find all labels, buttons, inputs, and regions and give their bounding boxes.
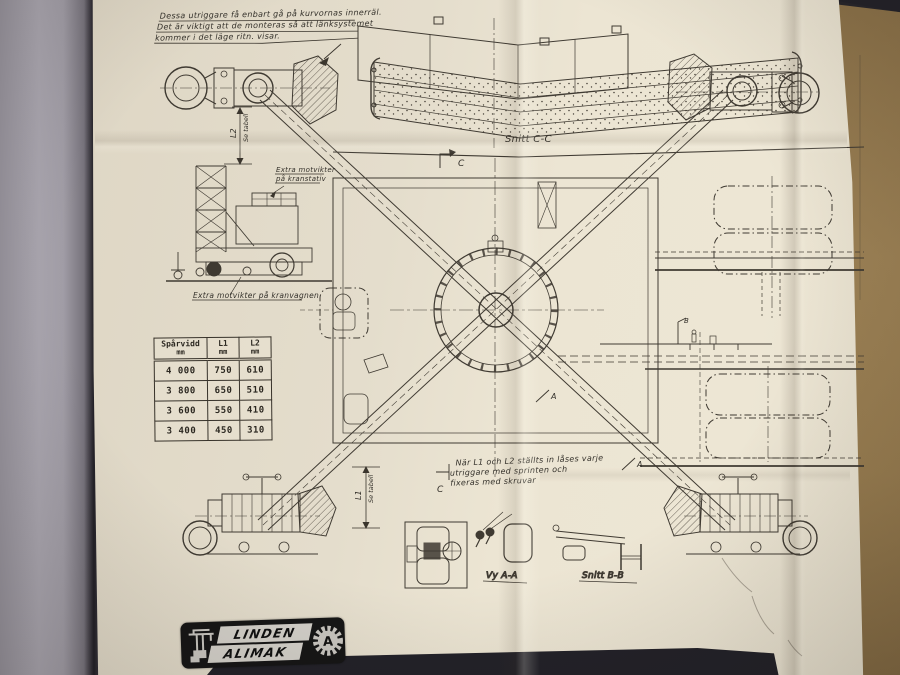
section-cc-callout: Snitt C-C C — [333, 134, 864, 169]
dimension-l2: L2 Se tabell — [224, 107, 252, 165]
dim-l2-se-tabell: Se tabell — [242, 113, 250, 142]
table-row: 4 000 750 610 — [154, 359, 271, 381]
technical-drawing: Dessa utriggare få enbart gå på kurvorna… — [0, 0, 900, 675]
dim-l1-label: L1 — [354, 490, 363, 500]
section-marker-c-top: C — [458, 159, 465, 169]
detail-vy-aa: Vy A-A — [405, 512, 532, 588]
section-marker-a-lower: A — [636, 460, 642, 469]
outrigger-bottom-left — [183, 474, 336, 555]
counterweight-labels: Extra motvikter på kranstativ Extra motv… — [192, 166, 336, 300]
logo-linden-text: LINDEN — [217, 623, 313, 643]
section-marker-c-bottom: C — [437, 485, 444, 495]
table-header-l1: L1mm — [207, 337, 239, 359]
table-row: 3 800 650 510 — [154, 380, 271, 401]
ballast-section-view — [358, 17, 802, 148]
note-mid-line3: fixeras med skruvar — [450, 476, 536, 488]
gear-icon: A — [310, 622, 345, 659]
dim-l2-label: L2 — [229, 128, 238, 138]
pencil-marks — [722, 558, 802, 656]
logo-alimak-text: ALIMAK — [208, 643, 304, 663]
note-top: Dessa utriggare få enbart gå på kurvorna… — [154, 7, 383, 45]
table-row: 3 400 450 310 — [155, 420, 272, 441]
detail-bb-label: Snitt B-B — [582, 571, 624, 581]
note-top-line3: kommer i det läge ritn. visar. — [155, 31, 280, 42]
table-row: 3 600 550 410 — [155, 400, 272, 421]
note-mid: När L1 och L2 ställts in låses varje utr… — [449, 452, 604, 487]
section-cc-label: Snitt C-C — [505, 134, 552, 145]
dim-l1-se-tabell: Se tabell — [367, 474, 375, 503]
section-marker-b: B — [684, 317, 689, 325]
linden-alimak-logo: LINDEN ALIMAK A — [180, 617, 346, 669]
detail-snitt-bb: Snitt B-B — [553, 525, 641, 583]
detail-aa-label: Vy A-A — [486, 571, 518, 581]
track-gauge-table: Spårviddmm L1mm L2mm 4 000 750 610 3 800… — [153, 336, 272, 441]
label-extra-vagn: Extra motvikter på kranvagnen — [193, 291, 319, 300]
table-header-row: Spårviddmm L1mm L2mm — [154, 337, 271, 360]
gear-letter: A — [323, 635, 334, 650]
table-header-sparvidd: Spårviddmm — [154, 338, 207, 361]
dimension-l1: L1 Se tabell — [352, 466, 380, 529]
outrigger-bottom-right — [664, 474, 817, 555]
table-header-l2: L2mm — [239, 337, 271, 359]
label-extra-stativ-line2: på kranstativ — [275, 174, 327, 183]
label-extra-stativ-line1: Extra motvikter — [276, 166, 336, 174]
section-marker-a-upper: A — [550, 392, 556, 401]
